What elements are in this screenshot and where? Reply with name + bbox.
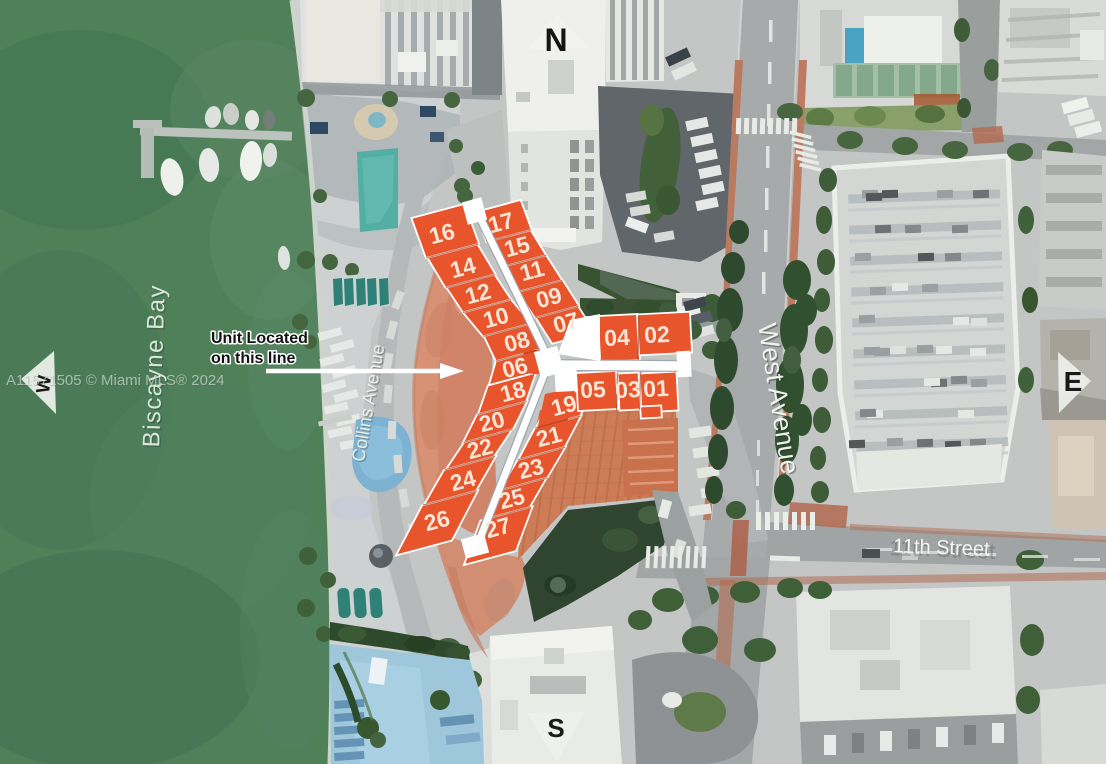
svg-text:on this line: on this line [211, 350, 296, 367]
svg-text:02: 02 [644, 321, 671, 348]
svg-text:11th Street: 11th Street [893, 535, 991, 560]
svg-text:03: 03 [615, 376, 642, 403]
svg-text:01: 01 [643, 375, 670, 402]
svg-text:Biscayne Bay: Biscayne Bay [138, 284, 171, 448]
svg-text:04: 04 [604, 324, 631, 351]
svg-text:E: E [1064, 366, 1083, 397]
svg-text:A11571505 © Miami MLS® 2024: A11571505 © Miami MLS® 2024 [6, 372, 225, 389]
svg-text:N: N [544, 22, 567, 58]
svg-text:Unit Located: Unit Located [211, 330, 308, 347]
svg-text:05: 05 [580, 376, 607, 403]
svg-text:S: S [547, 713, 564, 743]
